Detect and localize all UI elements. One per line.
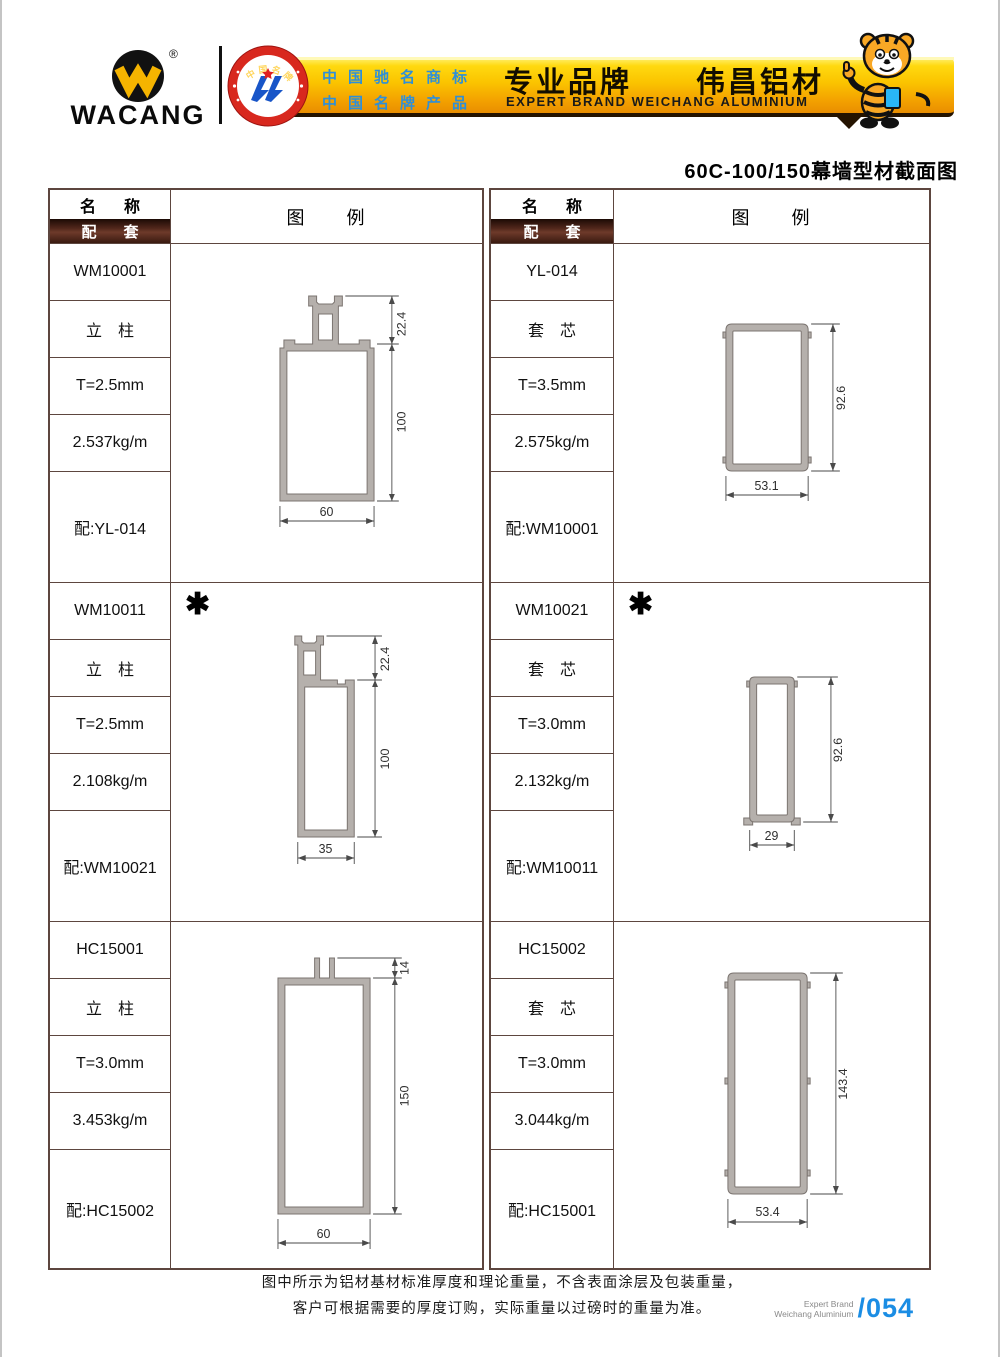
product-pairing: 配:WM10021 bbox=[50, 811, 170, 921]
header-diagram: 图 例 bbox=[171, 190, 482, 243]
product-code: YL-014 bbox=[491, 244, 613, 301]
banner-title-en: EXPERT BRAND WEICHANG ALUMINIUM bbox=[506, 94, 808, 109]
footer-brand-line1: Expert Brand bbox=[774, 1299, 853, 1309]
table-header: 名 称 配 套 图 例 bbox=[491, 190, 929, 244]
profile-diagram-wm10001: 22.4 100 60 bbox=[171, 244, 482, 582]
tiger-tail bbox=[916, 94, 928, 106]
dim-height: 100 bbox=[378, 748, 392, 769]
product-type: 套 芯 bbox=[491, 301, 613, 358]
page-number-block: Expert Brand Weichang Aluminium /054 bbox=[774, 1293, 914, 1324]
profile-diagram-hc15001: 14 150 60 bbox=[171, 922, 482, 1268]
dim-width: 35 bbox=[319, 842, 333, 856]
footer-brand-line2: Weichang Aluminium bbox=[774, 1309, 853, 1319]
page-title: 60C-100/150幕墙型材截面图 bbox=[562, 155, 958, 184]
dim-width: 53.1 bbox=[754, 479, 778, 493]
footer-brand-text: Expert Brand Weichang Aluminium bbox=[774, 1299, 853, 1319]
dim-width: 60 bbox=[317, 1227, 331, 1241]
product-type: 套 芯 bbox=[491, 979, 613, 1036]
accreditation-line1: 中国驰名商标 bbox=[322, 65, 478, 91]
page-number: /054 bbox=[857, 1293, 914, 1324]
tiger-mascot bbox=[838, 28, 938, 130]
diagram-cell: 22.4 100 60 bbox=[171, 244, 482, 582]
diagram-cell: 92.6 53.1 bbox=[614, 244, 929, 582]
dim-height: 100 bbox=[395, 411, 409, 432]
product-type: 立 柱 bbox=[50, 301, 170, 358]
header-name: 名 称 bbox=[491, 190, 613, 219]
product-block-hc15002: HC15002 套 芯 T=3.0mm 3.044kg/m 配:HC15001 … bbox=[491, 922, 929, 1268]
product-code: WM10011 bbox=[50, 583, 170, 640]
dim-top: 22.4 bbox=[378, 647, 392, 671]
dim-height: 92.6 bbox=[831, 738, 845, 762]
profile-table-left: 名 称 配 套 图 例 WM10001 立 柱 T=2.5mm 2.537kg/… bbox=[48, 188, 484, 1270]
product-code: HC15002 bbox=[491, 922, 613, 979]
product-type: 立 柱 bbox=[50, 979, 170, 1036]
china-top-brand-badge: 中国名牌 CHINA TOP BRAND bbox=[226, 44, 310, 128]
product-pairing: 配:HC15002 bbox=[50, 1150, 170, 1268]
dim-height: 143.4 bbox=[836, 1068, 850, 1099]
product-weight: 2.537kg/m bbox=[50, 415, 170, 472]
product-type: 套 芯 bbox=[491, 640, 613, 697]
product-thickness: T=3.0mm bbox=[491, 1036, 613, 1093]
dim-width: 60 bbox=[320, 505, 334, 519]
diagram-cell: 143.4 53.4 bbox=[614, 922, 929, 1268]
accreditation-text: 中国驰名商标 中国名牌产品 bbox=[322, 65, 478, 117]
header-divider bbox=[219, 46, 222, 124]
product-block-hc15001: HC15001 立 柱 T=3.0mm 3.453kg/m 配:HC15002 … bbox=[50, 922, 482, 1268]
product-weight: 3.453kg/m bbox=[50, 1093, 170, 1150]
product-pairing: 配:HC15001 bbox=[491, 1150, 613, 1268]
product-weight: 2.575kg/m bbox=[491, 415, 613, 472]
header-pairing: 配 套 bbox=[491, 219, 613, 243]
dim-top: 14 bbox=[398, 961, 412, 975]
product-block-wm10021: WM10021 套 芯 T=3.0mm 2.132kg/m 配:WM10011 … bbox=[491, 583, 929, 922]
table-header: 名 称 配 套 图 例 bbox=[50, 190, 482, 244]
tiger-book bbox=[885, 88, 900, 108]
header-pairing: 配 套 bbox=[50, 219, 170, 243]
product-thickness: T=2.5mm bbox=[50, 697, 170, 754]
dim-width: 53.4 bbox=[755, 1205, 779, 1219]
product-code: WM10001 bbox=[50, 244, 170, 301]
header-diagram: 图 例 bbox=[614, 190, 929, 243]
product-type: 立 柱 bbox=[50, 640, 170, 697]
diagram-cell: ✱ 92.6 29 bbox=[614, 583, 929, 921]
product-code: WM10021 bbox=[491, 583, 613, 640]
product-weight: 2.132kg/m bbox=[491, 754, 613, 811]
diagram-cell: ✱ 22.4 100 35 bbox=[171, 583, 482, 921]
dim-width: 29 bbox=[765, 829, 779, 843]
logo-wordmark: WACANG bbox=[71, 100, 206, 130]
product-thickness: T=3.0mm bbox=[50, 1036, 170, 1093]
product-code: HC15001 bbox=[50, 922, 170, 979]
header-name: 名 称 bbox=[50, 190, 170, 219]
wacang-logo: ® WACANG bbox=[62, 42, 214, 130]
dim-top: 22.4 bbox=[395, 312, 409, 336]
profile-diagram-wm10011: 22.4 100 35 bbox=[171, 583, 482, 921]
profile-table-right: 名 称 配 套 图 例 YL-014 套 芯 T=3.5mm 2.575kg/m… bbox=[489, 188, 931, 1270]
product-weight: 3.044kg/m bbox=[491, 1093, 613, 1150]
registered-mark: ® bbox=[169, 47, 178, 61]
product-thickness: T=3.5mm bbox=[491, 358, 613, 415]
product-block-wm10011: WM10011 立 柱 T=2.5mm 2.108kg/m 配:WM10021 … bbox=[50, 583, 482, 922]
product-block-wm10001: WM10001 立 柱 T=2.5mm 2.537kg/m 配:YL-014 2… bbox=[50, 244, 482, 583]
catalog-page: ® WACANG 中国驰名商标 中国名牌产品 专业品牌 伟昌铝材 EXPERT … bbox=[0, 0, 1000, 1357]
product-weight: 2.108kg/m bbox=[50, 754, 170, 811]
dim-height: 92.6 bbox=[834, 386, 848, 410]
product-thickness: T=3.0mm bbox=[491, 697, 613, 754]
product-block-yl014: YL-014 套 芯 T=3.5mm 2.575kg/m 配:WM10001 9… bbox=[491, 244, 929, 583]
dim-height: 150 bbox=[398, 1085, 412, 1106]
product-pairing: 配:WM10011 bbox=[491, 811, 613, 921]
profile-diagram-hc15002: 143.4 53.4 bbox=[614, 922, 929, 1268]
profile-diagram-yl014: 92.6 53.1 bbox=[614, 244, 929, 582]
profile-diagram-wm10021: 92.6 29 bbox=[614, 583, 929, 921]
accreditation-line2: 中国名牌产品 bbox=[322, 91, 478, 117]
product-pairing: 配:WM10001 bbox=[491, 472, 613, 582]
diagram-cell: 14 150 60 bbox=[171, 922, 482, 1268]
product-thickness: T=2.5mm bbox=[50, 358, 170, 415]
product-pairing: 配:YL-014 bbox=[50, 472, 170, 582]
